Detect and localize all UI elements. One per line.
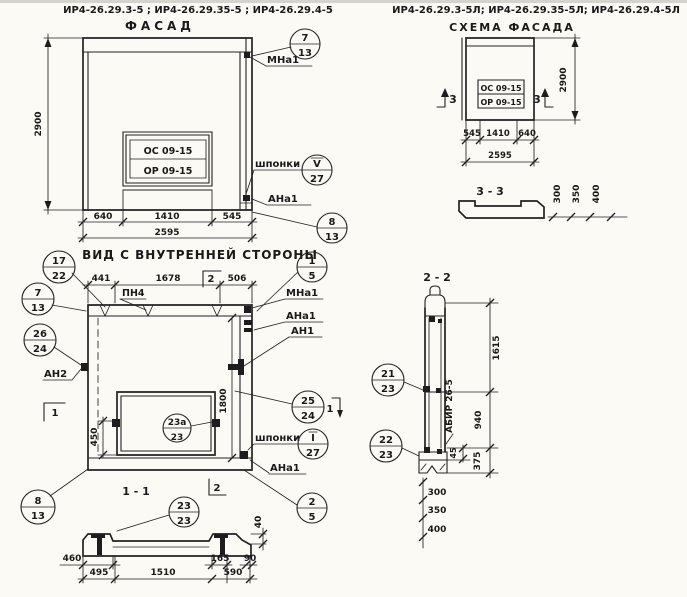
- balloon-26-24-bottom: 24: [33, 344, 47, 355]
- balloon-2-5-bottom: 5: [309, 512, 316, 523]
- facade-view: ОС 09-15 ОР 09-15 2900 640 1410 545 2595…: [34, 29, 347, 243]
- balloon-17-22-top: 17: [52, 256, 66, 267]
- facade-or-label: ОР 09-15: [144, 166, 193, 177]
- inner-ana1-tie-b: [244, 328, 252, 332]
- inner-lifting-notches: [100, 305, 222, 316]
- series-title-right: ИР4-26.29.3-5Л; ИР4-26.29.35-5Л; ИР4-26.…: [392, 5, 680, 16]
- inner-1800-dim: 1800: [219, 388, 229, 413]
- section-3-3-title: 3 - 3: [476, 185, 504, 198]
- inner-left-tie: [81, 363, 88, 371]
- s11-dim-40: 40: [254, 516, 264, 529]
- s22-dim-1615: 1615: [492, 335, 502, 360]
- balloon-facade-7-13-bottom: 13: [298, 48, 312, 59]
- inner-ana1-tie-a: [244, 320, 252, 325]
- balloon-inner-7-13-top: 7: [35, 288, 42, 299]
- drawing-sheet: ИР4-26.29.3-5 ; ИР4-26.29.35-5 ; ИР4-26.…: [0, 0, 687, 597]
- s11-dim40-lines: [251, 528, 266, 550]
- section-1-1: 23 23 460 165 90 495 1510 590 40: [60, 497, 267, 583]
- opening-right-tie: [212, 419, 220, 427]
- an1-label: АН1: [291, 326, 314, 337]
- inner-opening-inner: [121, 396, 211, 451]
- section-2-2-title: 2 - 2: [423, 271, 451, 284]
- inner-right-t-tie: [228, 359, 244, 375]
- s22-tie-top-b: [438, 319, 442, 323]
- facade-os-label: ОС 09-15: [144, 146, 193, 157]
- scheme-os-label: ОС 09-15: [480, 84, 521, 93]
- scheme-view: ОС 09-15 ОР 09-15 2900 545 1410 640 2595…: [437, 34, 580, 166]
- s11-left-anchor-stem: [97, 538, 102, 555]
- s22-tie-mid-b: [436, 388, 441, 393]
- facade-ana1-tie: [243, 195, 250, 201]
- section-2-mark-bottom: 2: [214, 483, 221, 494]
- scheme-w1-dim: 545: [463, 129, 481, 139]
- balloon-inner-8-13-bottom: 13: [31, 511, 45, 522]
- inner-outline: [88, 305, 252, 470]
- balloon-21-23-bottom: 23: [381, 384, 395, 395]
- inner-corner-tie: [244, 306, 251, 313]
- balloon-25-24-top: 25: [301, 396, 315, 407]
- balloon-23a-23-bottom: 23: [171, 433, 184, 443]
- s22-dim-ticks: [459, 299, 494, 477]
- facade-mna1-tie: [244, 52, 250, 58]
- facade-inner-lines: [83, 38, 252, 210]
- balloon-21-23-top: 21: [381, 369, 395, 380]
- abir-label: АБИР 26-5: [445, 379, 455, 433]
- balloon-22-23-top: 22: [379, 435, 393, 446]
- s11-dim-90: 90: [244, 554, 257, 564]
- abir-leader: [446, 434, 453, 444]
- section-3-mark-right-arrow: [541, 88, 549, 97]
- balloon-25-24-bottom: 24: [301, 411, 315, 422]
- scheme-height-dim-lines: [534, 34, 580, 124]
- facade-title: ФАСАД: [125, 19, 195, 33]
- balloon-17-22-bottom: 22: [52, 271, 66, 282]
- s33-profile: [459, 201, 544, 218]
- scheme-w3-dim: 640: [518, 129, 536, 139]
- s11-right-anchor-flange: [214, 534, 228, 538]
- s22-tie-mid-a: [423, 386, 430, 392]
- s22-dim-940: 940: [474, 411, 484, 430]
- balloon-2-5-top: 2: [309, 497, 316, 508]
- balloon-facade-key-bottom: 27: [310, 174, 324, 185]
- facade-w3-dim: 545: [223, 212, 242, 222]
- balloon-inner-8-13-top: 8: [35, 496, 42, 507]
- section-2-mark-top: 2: [208, 274, 215, 285]
- inner-450-dim: 450: [90, 428, 100, 447]
- inner-ana1-bottom-label: АНа1: [270, 463, 300, 474]
- inner-w2-dim: 1678: [155, 274, 180, 284]
- section-2-2: АБИР 26-5 21 23 22 23 1615 940 375 45 30…: [370, 286, 502, 548]
- inner-bottom-tie: [240, 451, 248, 459]
- section-1-mark-right: 1: [327, 404, 334, 415]
- inner-view-title: ВИД С ВНУТРЕННЕЙ СТОРОНЫ: [82, 247, 318, 262]
- s11-dim-460: 460: [63, 554, 82, 564]
- facade-w2-dim: 1410: [154, 212, 179, 222]
- section-3-mark-left-arrow: [441, 88, 449, 97]
- s33-dim-400: 400: [592, 185, 602, 204]
- s22-dim-45: 45: [449, 447, 458, 459]
- s33-dim-350: 350: [572, 185, 582, 204]
- balloon-facade-7-13-top: 7: [302, 33, 309, 44]
- facade-panel-opening: [123, 132, 212, 190]
- s22-dim-300: 300: [428, 488, 447, 498]
- balloon-facade-8-13-top: 8: [329, 217, 336, 228]
- drawing-canvas: ИР4-26.29.3-5 ; ИР4-26.29.35-5 ; ИР4-26.…: [0, 0, 687, 597]
- section-1-1-title: 1 - 1: [122, 485, 150, 498]
- facade-height-dim-lines: [44, 34, 83, 214]
- s22-dim-350: 350: [428, 506, 447, 516]
- an1-leader: [244, 337, 322, 366]
- section-1-mark-right-arrow: [337, 410, 343, 418]
- facade-shponki-leader: [246, 170, 302, 194]
- facade-outline: [83, 38, 252, 210]
- balloon-26-24-top: 26: [33, 329, 47, 340]
- section-3-mark-right: 3: [533, 93, 541, 106]
- s11-dim-495: 495: [90, 568, 109, 578]
- facade-total-dim: 2595: [154, 228, 179, 238]
- s11-dim-590: 590: [224, 568, 243, 578]
- inner-opening-outer: [117, 392, 215, 455]
- facade-w1-dim: 640: [94, 212, 113, 222]
- pn4-label: ПН4: [122, 288, 145, 299]
- balloon-facade-key-top: V: [313, 159, 321, 170]
- balloon-1-5-bottom: 5: [309, 271, 316, 282]
- scan-edge: [0, 0, 687, 3]
- s22-panel-edges: [425, 308, 445, 452]
- balloon-facade-8-13-bottom: 13: [325, 232, 339, 243]
- s22-dim-400: 400: [428, 525, 447, 535]
- opening-left-tie: [112, 419, 120, 427]
- facade-height-dim: 2900: [34, 111, 44, 136]
- balloon-23-23-top: 23: [177, 501, 191, 512]
- facade-shponki-label: шпонки: [255, 159, 300, 170]
- balloon-23-23-bottom: 23: [177, 516, 191, 527]
- s11-right-anchor-stem: [220, 538, 225, 555]
- section-1-mark-left: 1: [52, 408, 59, 419]
- inner-shponki-leader: [248, 444, 298, 450]
- facade-mna1-label: МНа1: [267, 55, 299, 66]
- scheme-height-dim: 2900: [559, 67, 569, 92]
- inner-mna1-label: МНа1: [286, 288, 318, 299]
- section-3-mark-left: 3: [449, 93, 457, 106]
- balloon-23a-23-top: 23а: [168, 418, 187, 428]
- s22-top-hook: [425, 286, 445, 392]
- s22-dim-375: 375: [473, 452, 483, 471]
- inner-shponki-label: шпонки: [255, 433, 300, 444]
- scheme-title: СХЕМА ФАСАДА: [449, 21, 575, 34]
- s11-dim-1510: 1510: [150, 568, 175, 578]
- inner-w1-dim: 441: [92, 274, 111, 284]
- inner-top-dim-lines: [83, 281, 257, 303]
- balloon-inner-key-top: I: [311, 433, 315, 444]
- inner-mna1-leader: [252, 299, 323, 308]
- scheme-total-dim: 2595: [488, 151, 512, 161]
- inner-view: 450 1800 441 1678 506 2 ПН4 17 22 7 13 2…: [21, 251, 343, 524]
- s22-shoe: [419, 452, 447, 473]
- balloon-22-23-divider-leader: [370, 446, 419, 456]
- balloon-21-23-divider-leader: [372, 380, 423, 390]
- an2-label: АН2: [44, 369, 67, 380]
- series-title-left: ИР4-26.29.3-5 ; ИР4-26.29.35-5 ; ИР4-26.…: [63, 5, 333, 16]
- balloon-1-5-top: 1: [309, 256, 316, 267]
- facade-ana1-label: АНа1: [268, 194, 298, 205]
- s33-dim-300: 300: [553, 185, 563, 204]
- inner-ana1-top-label: АНа1: [286, 311, 316, 322]
- inner-w3-dim: 506: [228, 274, 247, 284]
- scheme-w2-dim: 1410: [486, 129, 510, 139]
- s11-left-anchor-flange: [91, 534, 105, 538]
- facade-balloon-8-13-leader: [252, 212, 317, 227]
- s11-dim-165: 165: [211, 554, 230, 564]
- balloon-inner-key-bottom: 27: [306, 448, 320, 459]
- balloon-inner-7-13-bottom: 13: [31, 303, 45, 314]
- s22-tie-top-a: [429, 316, 435, 322]
- s22-inner-lines: [429, 318, 441, 448]
- scheme-or-label: ОР 09-15: [480, 98, 521, 107]
- balloon-22-23-bottom: 23: [379, 450, 393, 461]
